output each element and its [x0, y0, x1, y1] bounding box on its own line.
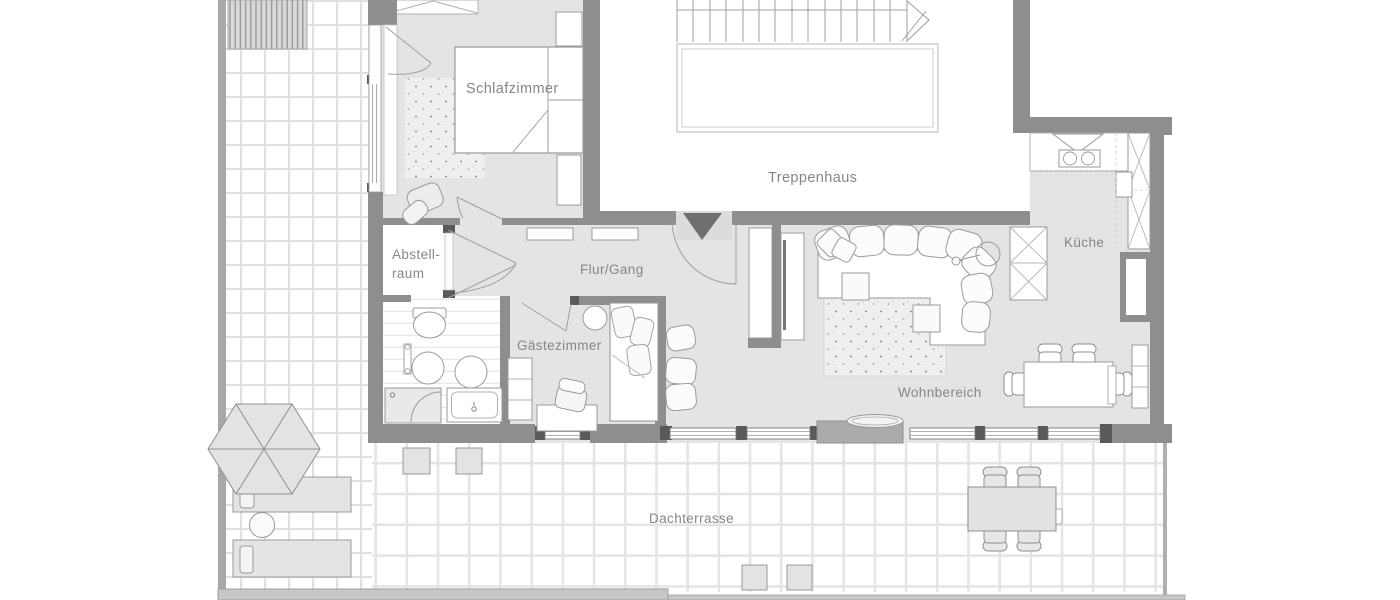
window-post	[736, 426, 747, 440]
room-label-wohnbereich: Wohnbereich	[898, 385, 982, 400]
window-glazing-west	[369, 25, 381, 192]
kitchen-sink-unit	[1116, 172, 1132, 197]
window-post	[975, 426, 985, 440]
tv-sideboard	[781, 233, 804, 340]
window-post	[1038, 426, 1048, 440]
terrace-side-table	[250, 513, 275, 538]
tv	[783, 240, 786, 330]
stair-landing	[677, 44, 938, 132]
door-post	[443, 225, 455, 233]
wall-segment	[368, 192, 383, 443]
room-label-gaestezimmer: Gästezimmer	[517, 338, 602, 353]
wall-segment	[1150, 133, 1164, 424]
bathtub	[447, 388, 502, 422]
terrace-parapet-bottom-right	[668, 595, 1185, 600]
window-post	[1100, 424, 1112, 443]
room-label-kueche: Küche	[1064, 235, 1104, 250]
hall-shelf	[527, 228, 573, 240]
floor-plan-canvas: Schlafzimmer Treppenhaus Abstell- raum F…	[0, 0, 1400, 600]
terrace-planter	[456, 448, 482, 474]
shower	[385, 388, 441, 423]
guest-bed	[610, 303, 658, 421]
wall-segment	[1150, 117, 1172, 135]
room-label-abstellraum-1: Abstell-	[392, 247, 440, 262]
wall-segment	[368, 0, 397, 25]
side-table	[583, 306, 607, 330]
terrace-canopy-hatch	[228, 0, 307, 49]
nightstand	[556, 12, 582, 46]
dining-table	[1024, 362, 1113, 407]
wall-segment	[368, 424, 535, 443]
wardrobe	[508, 358, 532, 420]
washer	[412, 352, 444, 384]
coffee-table	[913, 305, 940, 332]
wall-segment	[1013, 117, 1172, 133]
pantry-cabinet	[1010, 227, 1047, 300]
window-sill	[384, 25, 397, 195]
room-label-flur-gang: Flur/Gang	[580, 262, 644, 277]
outdoor-table	[968, 487, 1056, 531]
coffee-table	[842, 273, 869, 300]
hall-sideboard	[749, 228, 772, 338]
sun-lounger	[233, 540, 351, 577]
wall-segment	[1013, 0, 1030, 133]
radiator	[404, 344, 411, 374]
terrace-parapet-bottom	[218, 589, 668, 600]
double-bed	[455, 47, 583, 153]
dryer	[455, 356, 487, 388]
wall-segment	[583, 211, 1030, 225]
door-post	[570, 296, 579, 305]
door-post	[443, 290, 455, 298]
partition-wall	[772, 225, 781, 347]
terrace-planter	[787, 565, 812, 590]
room-label-treppenhaus: Treppenhaus	[768, 170, 857, 186]
wall-segment	[502, 218, 583, 225]
armchair	[665, 324, 697, 412]
floor-plan: Schlafzimmer Treppenhaus Abstell- raum F…	[0, 0, 1400, 600]
wall-niche-opening	[1126, 259, 1146, 315]
living-sideboard	[1132, 345, 1148, 408]
wall-segment	[583, 0, 600, 211]
wall-segment	[1112, 424, 1172, 443]
wall-segment	[383, 295, 411, 302]
room-label-schlafzimmer: Schlafzimmer	[466, 81, 559, 97]
door-sill-abstellraum	[445, 233, 453, 290]
outdoor-table-end	[1056, 509, 1062, 524]
cooktop	[1059, 150, 1100, 167]
toilet	[413, 308, 446, 338]
terrace-parapet-left	[218, 0, 226, 600]
room-label-abstellraum-2: raum	[392, 266, 424, 281]
wall-segment	[590, 424, 667, 443]
desk-chair	[554, 377, 588, 412]
dresser	[557, 155, 581, 205]
terrace-planter	[403, 448, 430, 474]
terrace-edge-right	[1163, 443, 1167, 595]
hall-shelf	[592, 228, 638, 240]
partition-wall-foot	[748, 338, 781, 348]
terrace-planter	[742, 565, 767, 590]
room-label-dachterrasse: Dachterrasse	[649, 511, 734, 526]
roof-structure	[388, 0, 478, 14]
